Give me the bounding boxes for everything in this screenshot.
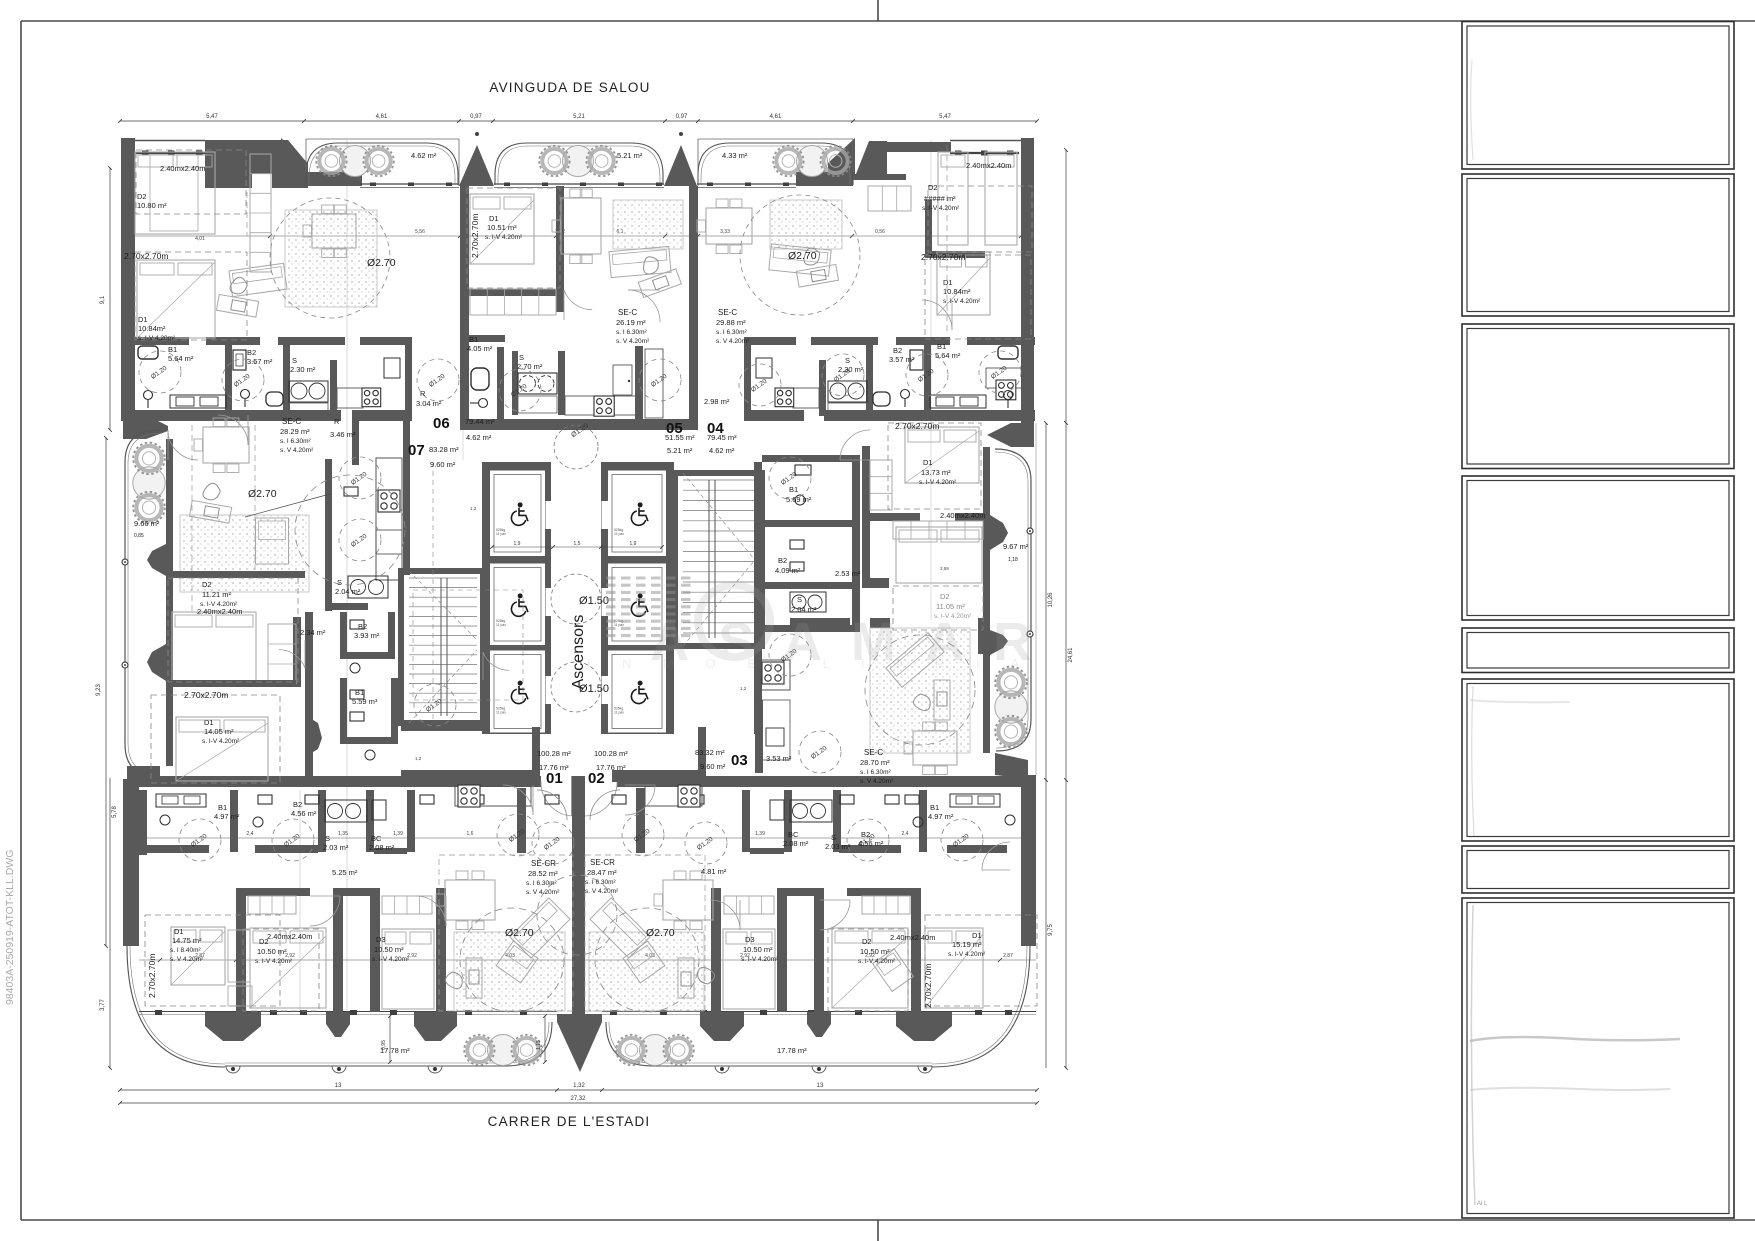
svg-text:2.08 m²: 2.08 m² [369, 843, 395, 852]
svg-text:B1: B1 [937, 342, 946, 351]
svg-text:s. I 6.30m²: s. I 6.30m² [526, 880, 558, 887]
svg-text:B2: B2 [778, 556, 787, 565]
svg-text:B2: B2 [358, 622, 367, 631]
svg-text:07: 07 [408, 442, 425, 459]
svg-text:1,15: 1,15 [536, 1040, 542, 1050]
svg-text:s. I-V 4.20m²: s. I-V 4.20m² [943, 298, 981, 305]
svg-text:100.28 m²: 100.28 m² [537, 749, 571, 758]
svg-text:s. I-V 4.20m²: s. I-V 4.20m² [741, 956, 779, 963]
svg-text:B2: B2 [861, 830, 870, 839]
svg-text:2.40mx2.40m: 2.40mx2.40m [267, 932, 312, 941]
svg-text:4.62 m²: 4.62 m² [411, 151, 437, 160]
svg-text:B2: B2 [247, 348, 256, 357]
svg-text:2.70x2.70m: 2.70x2.70m [124, 251, 168, 261]
svg-text:2,4: 2,4 [902, 831, 909, 837]
svg-text:2.03 m²: 2.03 m² [323, 843, 349, 852]
svg-text:0,85: 0,85 [134, 533, 144, 539]
svg-text:4.56 m²: 4.56 m² [291, 809, 317, 818]
svg-text:Ø1.50: Ø1.50 [579, 595, 609, 607]
svg-text:01: 01 [546, 770, 563, 787]
svg-text:2.40mx2.40m: 2.40mx2.40m [890, 933, 935, 942]
svg-text:R: R [420, 389, 426, 398]
svg-text:04: 04 [707, 420, 724, 437]
svg-text:Ø2.70: Ø2.70 [646, 927, 675, 939]
svg-text:100.28 m²: 100.28 m² [594, 749, 628, 758]
svg-text:Ø2.70: Ø2.70 [788, 250, 817, 262]
svg-text:11 pax: 11 pax [614, 711, 624, 715]
svg-text:B1: B1 [355, 688, 364, 697]
svg-text:0,97: 0,97 [676, 114, 688, 120]
svg-text:1,18: 1,18 [1008, 557, 1018, 563]
svg-text:s. I-V 4.20m²: s. I-V 4.20m² [948, 951, 986, 958]
svg-text:D1: D1 [174, 927, 184, 936]
svg-text:3,59: 3,59 [940, 566, 949, 571]
svg-text:D1: D1 [943, 278, 953, 287]
svg-text:3,33: 3,33 [720, 229, 730, 235]
svg-text:Al L: Al L [1477, 1201, 1488, 1207]
svg-text:S: S [519, 353, 524, 362]
svg-text:11 pax: 11 pax [496, 623, 506, 627]
svg-text:2.04 m²: 2.04 m² [335, 587, 361, 596]
svg-text:1,35: 1,35 [338, 831, 348, 837]
svg-text:s. I-V 4.20m²: s. I-V 4.20m² [202, 738, 240, 745]
svg-text:s. V 4.20m²: s. V 4.20m² [585, 888, 619, 895]
svg-text:s. I 6.30m²: s. I 6.30m² [585, 879, 617, 886]
svg-text:D3: D3 [745, 935, 755, 944]
svg-text:4,01: 4,01 [195, 236, 205, 242]
svg-text:1,39: 1,39 [393, 831, 403, 837]
svg-text:2.70 m²: 2.70 m² [517, 362, 543, 371]
svg-text:4.97 m²: 4.97 m² [214, 812, 240, 821]
svg-text:2.70x2.70m: 2.70x2.70m [895, 421, 939, 431]
svg-text:D2: D2 [137, 192, 147, 201]
svg-text:Ascensors: Ascensors [570, 615, 587, 690]
svg-text:5.64 m²: 5.64 m² [168, 354, 194, 363]
svg-text:9.67 m²: 9.67 m² [1003, 542, 1029, 551]
svg-text:3.04 m²: 3.04 m² [416, 399, 442, 408]
svg-text:D2: D2 [862, 937, 872, 946]
svg-text:B2: B2 [893, 346, 902, 355]
svg-text:28.52 m²: 28.52 m² [528, 869, 558, 878]
svg-text:Ø2.70: Ø2.70 [248, 488, 277, 500]
svg-text:s. V 4.20m²: s. V 4.20m² [280, 447, 314, 454]
svg-text:4.81 m²: 4.81 m² [701, 867, 727, 876]
svg-text:3.46 m²: 3.46 m² [330, 430, 356, 439]
svg-text:1,5: 1,5 [574, 541, 581, 547]
svg-text:1,39: 1,39 [755, 831, 765, 837]
svg-text:B1: B1 [469, 335, 478, 344]
svg-text:06: 06 [433, 415, 450, 432]
svg-text:S: S [292, 356, 297, 365]
svg-text:S: S [797, 595, 802, 604]
svg-text:13: 13 [817, 1083, 824, 1089]
svg-text:3.57 m²: 3.57 m² [889, 355, 915, 364]
svg-text:2.53 m²: 2.53 m² [835, 569, 861, 578]
svg-text:9,75: 9,75 [1048, 924, 1054, 936]
svg-text:0,95: 0,95 [381, 1040, 387, 1050]
svg-text:BC: BC [371, 834, 382, 843]
svg-text:AVINGUDA DE SALOU: AVINGUDA DE SALOU [489, 80, 650, 95]
svg-text:10.80 m²: 10.80 m² [137, 201, 167, 210]
svg-text:5,78: 5,78 [112, 806, 118, 818]
svg-text:5,47: 5,47 [939, 114, 951, 120]
svg-text:SE-C: SE-C [618, 308, 637, 317]
svg-text:2.40mx2.40m: 2.40mx2.40m [197, 607, 242, 616]
svg-text:B1: B1 [789, 485, 798, 494]
svg-text:17.78 m²: 17.78 m² [777, 1046, 807, 1055]
svg-text:03: 03 [731, 752, 748, 769]
svg-text:2.04 m²: 2.04 m² [791, 605, 817, 614]
svg-text:11 pax: 11 pax [496, 532, 506, 536]
svg-text:9.66 m²: 9.66 m² [134, 519, 160, 528]
svg-text:1,2: 1,2 [740, 686, 747, 691]
svg-text:11.05 m²: 11.05 m² [936, 602, 966, 611]
svg-text:D1: D1 [204, 718, 214, 727]
svg-text:s. I 6.30m²: s. I 6.30m² [616, 329, 648, 336]
svg-text:26.19 m²: 26.19 m² [616, 318, 646, 327]
svg-text:B1: B1 [168, 345, 177, 354]
svg-text:CARRER DE L'ESTADI: CARRER DE L'ESTADI [488, 1114, 651, 1129]
svg-text:S: S [831, 833, 836, 842]
svg-text:9,1: 9,1 [100, 295, 106, 304]
svg-text:5.21 m²: 5.21 m² [617, 151, 643, 160]
svg-text:4.33 m²: 4.33 m² [722, 151, 748, 160]
svg-text:0,56: 0,56 [875, 229, 885, 235]
svg-text:D1: D1 [489, 214, 499, 223]
svg-text:2.03 m²: 2.03 m² [825, 842, 851, 851]
svg-text:3.57 m²: 3.57 m² [247, 357, 273, 366]
svg-text:2.08 m²: 2.08 m² [783, 839, 809, 848]
svg-text:SE-C: SE-C [718, 308, 737, 317]
svg-text:SE-CR: SE-CR [590, 858, 615, 867]
svg-text:D1: D1 [972, 931, 982, 940]
svg-text:10.50 m²: 10.50 m² [860, 947, 890, 956]
svg-text:29.88 m²: 29.88 m² [716, 318, 746, 327]
svg-text:2.70x2.70m: 2.70x2.70m [147, 954, 157, 998]
svg-text:4.05 m²: 4.05 m² [467, 344, 493, 353]
svg-text:2.40mx2.40m: 2.40mx2.40m [966, 161, 1011, 170]
svg-text:s. I-V 4.20m²: s. I-V 4.20m² [919, 479, 957, 486]
svg-text:S: S [325, 834, 330, 843]
svg-text:2.40mx2.40m: 2.40mx2.40m [940, 511, 985, 520]
svg-text:s. V 4.20m²: s. V 4.20m² [526, 889, 560, 896]
svg-text:2.34 m²: 2.34 m² [300, 628, 326, 637]
svg-text:3.93 m²: 3.93 m² [354, 631, 380, 640]
svg-text:13: 13 [335, 1083, 342, 1089]
svg-text:3,77: 3,77 [100, 999, 106, 1011]
svg-text:11 pax: 11 pax [496, 711, 506, 715]
svg-text:SE-CR: SE-CR [531, 859, 556, 868]
svg-text:27,32: 27,32 [570, 1096, 586, 1102]
svg-text:s. I-V 4.20m²: s. I-V 4.20m² [922, 205, 960, 212]
svg-text:4.62 m²: 4.62 m² [466, 433, 492, 442]
svg-text:SE-C: SE-C [864, 748, 883, 757]
svg-text:5.21 m²: 5.21 m² [667, 446, 693, 455]
svg-text:B2: B2 [293, 800, 302, 809]
svg-text:I N M O B I L I A R I A: I N M O B I L I A R I A [587, 656, 1034, 671]
svg-text:05: 05 [666, 420, 683, 437]
svg-text:4.62 m²: 4.62 m² [709, 446, 735, 455]
svg-text:9.60 m²: 9.60 m² [430, 460, 456, 469]
svg-text:s. I-V 4.20m²: s. I-V 4.20m² [858, 958, 896, 965]
svg-text:9.60 m²: 9.60 m² [700, 762, 726, 771]
svg-text:1,2: 1,2 [470, 506, 477, 511]
svg-text:0,97: 0,97 [470, 114, 482, 120]
svg-text:2.70x2.70m: 2.70x2.70m [470, 214, 480, 258]
svg-text:10.50 m²: 10.50 m² [257, 947, 287, 956]
svg-text:1,9: 1,9 [514, 541, 521, 547]
svg-text:5.64 m²: 5.64 m² [935, 351, 961, 360]
svg-text:Ø2.70: Ø2.70 [505, 927, 534, 939]
svg-text:2.70x2.70m: 2.70x2.70m [923, 964, 933, 1008]
svg-text:2.40mx2.40m: 2.40mx2.40m [160, 164, 205, 173]
svg-text:D1: D1 [138, 315, 148, 324]
svg-text:B1: B1 [218, 803, 227, 812]
svg-text:D1: D1 [923, 458, 933, 467]
svg-text:s. I 6.30m²: s. I 6.30m² [860, 769, 892, 776]
svg-text:1,32: 1,32 [573, 1083, 585, 1089]
svg-text:79.44 m²: 79.44 m² [465, 417, 495, 426]
svg-text:Ø1.50: Ø1.50 [579, 683, 609, 695]
svg-text:5.69 m²: 5.69 m² [786, 495, 812, 504]
svg-text:11 pax: 11 pax [614, 623, 624, 627]
svg-text:1,6: 1,6 [467, 831, 474, 837]
svg-text:s. V 4.20m²: s. V 4.20m² [860, 778, 894, 785]
svg-text:s. V 4.20m²: s. V 4.20m² [716, 338, 750, 345]
svg-text:10.84m²: 10.84m² [138, 324, 166, 333]
svg-text:s. I-V 4.20m²: s. I-V 4.20m² [138, 335, 176, 342]
svg-text:5.25 m²: 5.25 m² [332, 868, 358, 877]
svg-text:11 pax: 11 pax [614, 532, 624, 536]
svg-text:14.05 m²: 14.05 m² [204, 727, 234, 736]
svg-text:D2: D2 [940, 592, 950, 601]
svg-text:83.28 m²: 83.28 m² [429, 445, 459, 454]
svg-text:4,61: 4,61 [376, 114, 388, 120]
svg-text:D2: D2 [202, 580, 212, 589]
svg-text:s. I 6.30m²: s. I 6.30m² [716, 329, 748, 336]
svg-text:2.30 m²: 2.30 m² [838, 365, 864, 374]
svg-text:SE-C: SE-C [282, 417, 301, 426]
svg-text:B1: B1 [930, 803, 939, 812]
svg-text:2.70x2.70m: 2.70x2.70m [921, 252, 965, 262]
svg-text:24,61: 24,61 [1068, 647, 1074, 663]
svg-text:D2: D2 [928, 183, 938, 192]
svg-text:10.50 m²: 10.50 m² [374, 945, 404, 954]
svg-text:28.29 m²: 28.29 m² [280, 427, 310, 436]
svg-text:4.56 m²: 4.56 m² [858, 839, 884, 848]
svg-text:10,26: 10,26 [1048, 592, 1054, 608]
svg-text:02: 02 [588, 770, 605, 787]
svg-text:10.84m²: 10.84m² [943, 287, 971, 296]
svg-text:D3: D3 [376, 935, 386, 944]
svg-text:R: R [334, 417, 340, 426]
svg-text:S: S [337, 578, 342, 587]
svg-text:83.32 m²: 83.32 m² [695, 748, 725, 757]
svg-text:2,4: 2,4 [247, 831, 254, 837]
svg-text:11.21 m²: 11.21 m² [202, 590, 232, 599]
svg-text:4.97 m²: 4.97 m² [928, 812, 954, 821]
svg-text:S: S [845, 356, 850, 365]
svg-text:98403A-250919-ATOT-KLL.DWG: 98403A-250919-ATOT-KLL.DWG [4, 850, 16, 1005]
svg-text:2.98 m²: 2.98 m² [704, 397, 730, 406]
svg-text:5,21: 5,21 [573, 114, 585, 120]
svg-text:15.19 m²: 15.19 m² [952, 940, 982, 949]
svg-text:4.09 m²: 4.09 m² [775, 566, 801, 575]
svg-text:BC: BC [788, 830, 799, 839]
svg-text:D2: D2 [259, 937, 269, 946]
svg-text:s. I-V 4.20m²: s. I-V 4.20m² [485, 234, 523, 241]
svg-text:1,2: 1,2 [415, 756, 422, 761]
svg-text:28.70 m²: 28.70 m² [860, 758, 890, 767]
svg-text:13.73 m²: 13.73 m² [921, 468, 951, 477]
svg-text:10.50 m²: 10.50 m² [743, 945, 773, 954]
svg-text:5.59 m³: 5.59 m³ [352, 697, 378, 706]
svg-text:2.30 m²: 2.30 m² [290, 365, 316, 374]
svg-text:5,56: 5,56 [415, 229, 425, 235]
svg-text:s. I 6.30m²: s. I 6.30m² [280, 438, 312, 445]
svg-text:1,9: 1,9 [630, 541, 637, 547]
svg-text:s. I-V 4.20m²: s. I-V 4.20m² [255, 958, 293, 965]
svg-text:2,87: 2,87 [1003, 953, 1013, 959]
svg-text:5,47: 5,47 [206, 114, 218, 120]
svg-text:4,61: 4,61 [770, 114, 782, 120]
svg-text:s. I-V 4.20m²: s. I-V 4.20m² [934, 613, 972, 620]
svg-text:3.53 m²: 3.53 m² [766, 754, 792, 763]
svg-text:2.70x2.70m: 2.70x2.70m [184, 690, 228, 700]
svg-text:Ø2.70: Ø2.70 [367, 257, 396, 269]
svg-text:s. V 4.20m²: s. V 4.20m² [616, 338, 650, 345]
svg-text:14.75 m²: 14.75 m² [172, 936, 202, 945]
svg-text:28.47 m²: 28.47 m² [587, 868, 617, 877]
svg-text:s. V 4.20m²: s. V 4.20m² [170, 956, 204, 963]
svg-text:s. I-V 4.20m²: s. I-V 4.20m² [372, 956, 410, 963]
svg-text:10.51 m²: 10.51 m² [487, 223, 517, 232]
svg-text:s. I 8.40m²: s. I 8.40m² [170, 947, 202, 954]
svg-text:9,23: 9,23 [96, 684, 102, 696]
svg-text:##### m²: ##### m² [924, 194, 956, 203]
